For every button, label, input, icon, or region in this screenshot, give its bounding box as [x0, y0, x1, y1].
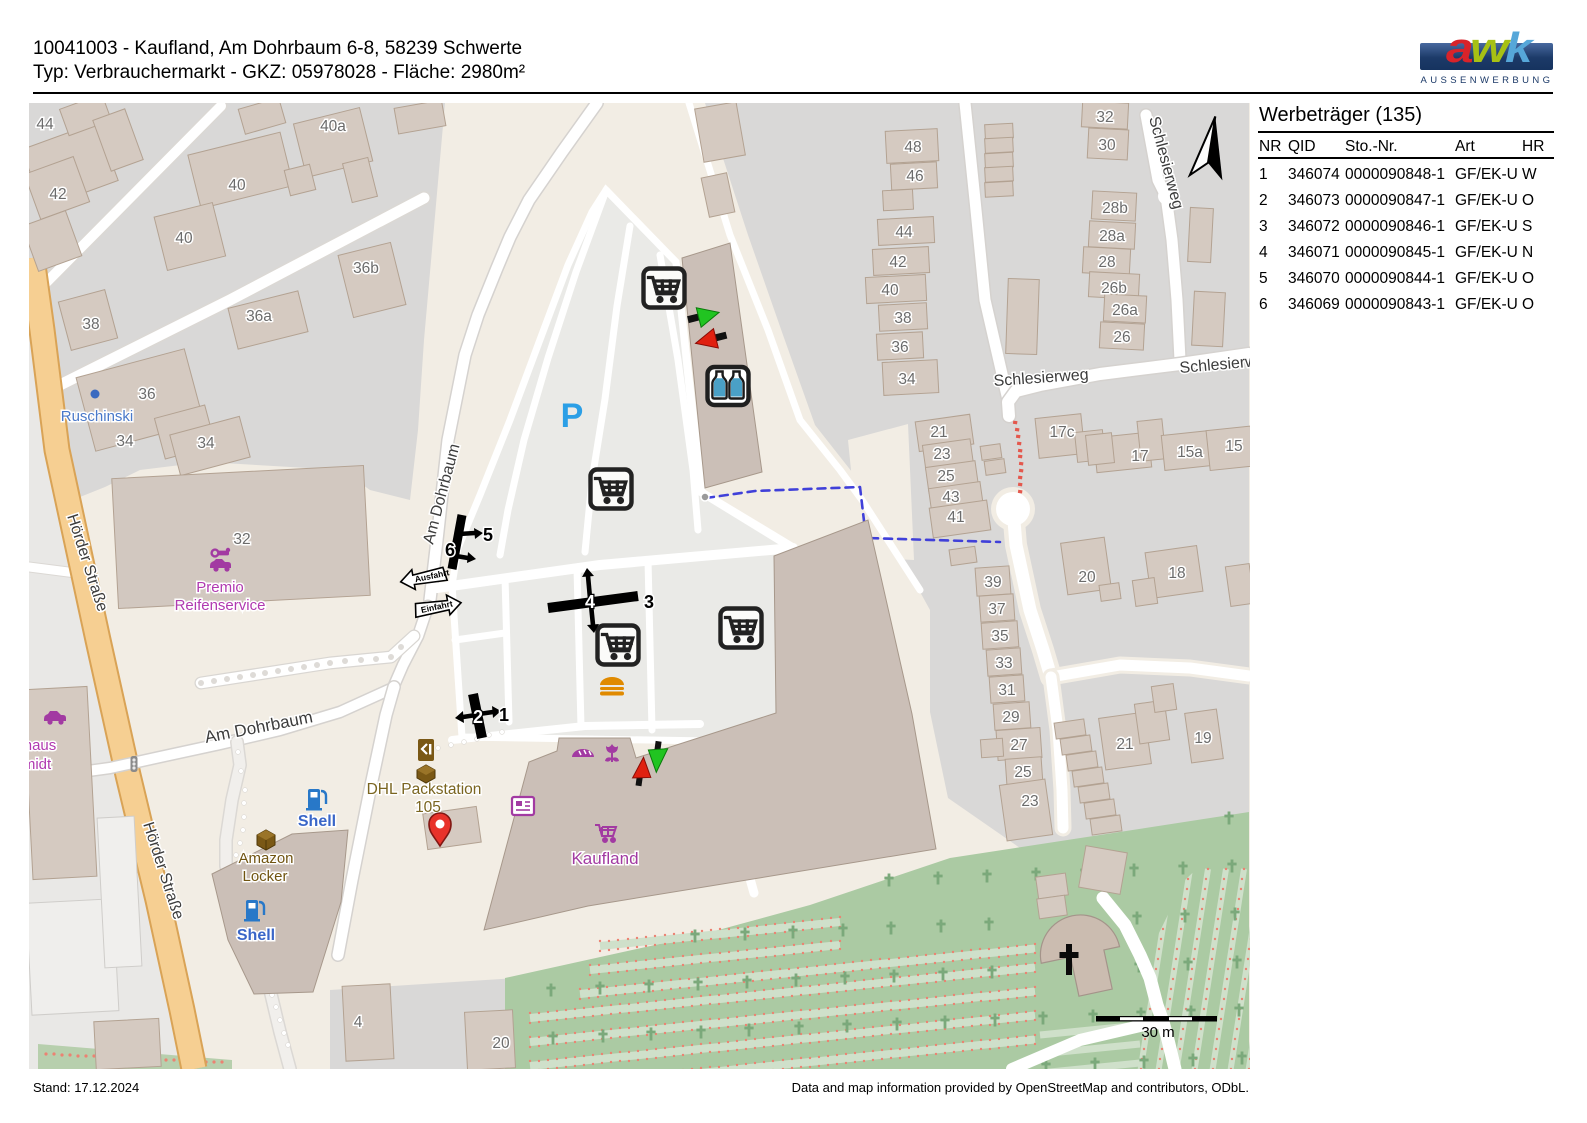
svg-text:26: 26: [1113, 329, 1130, 346]
svg-text:Shell: Shell: [237, 927, 275, 944]
svg-text:1: 1: [499, 705, 509, 725]
svg-text:30 m: 30 m: [1141, 1024, 1174, 1041]
svg-text:27: 27: [1010, 737, 1027, 754]
svg-text:15a: 15a: [1177, 444, 1203, 461]
svg-text:20: 20: [1078, 569, 1096, 586]
svg-text:31: 31: [998, 682, 1015, 699]
svg-text:36: 36: [891, 339, 908, 356]
svg-text:20: 20: [492, 1035, 510, 1052]
svg-text:36: 36: [138, 386, 155, 403]
svg-text:Kaufland: Kaufland: [571, 849, 638, 868]
svg-text:34: 34: [116, 433, 134, 450]
svg-text:38: 38: [82, 316, 99, 333]
svg-text:21: 21: [1116, 736, 1133, 753]
svg-text:28b: 28b: [1102, 200, 1128, 217]
svg-text:36a: 36a: [246, 308, 272, 325]
svg-text:28a: 28a: [1099, 228, 1125, 245]
svg-text:23: 23: [933, 446, 950, 463]
svg-text:19: 19: [1194, 730, 1211, 747]
svg-text:18: 18: [1168, 565, 1185, 582]
svg-text:21: 21: [930, 424, 947, 441]
svg-text:37: 37: [988, 601, 1005, 618]
svg-text:35: 35: [991, 628, 1008, 645]
svg-text:P: P: [561, 397, 584, 435]
svg-text:15: 15: [1225, 438, 1242, 455]
svg-text:40: 40: [228, 177, 246, 194]
svg-text:DHL Packstation: DHL Packstation: [367, 781, 482, 798]
svg-text:Premio: Premio: [196, 579, 244, 596]
svg-text:4: 4: [354, 1014, 363, 1031]
svg-text:26a: 26a: [1112, 302, 1138, 319]
svg-text:haus: haus: [29, 737, 56, 754]
svg-text:38: 38: [894, 310, 911, 327]
svg-text:Reifenservice: Reifenservice: [175, 597, 266, 614]
svg-text:43: 43: [942, 489, 959, 506]
svg-text:2: 2: [473, 707, 483, 727]
svg-text:Locker: Locker: [242, 868, 287, 885]
svg-text:46: 46: [906, 168, 923, 185]
svg-text:34: 34: [898, 371, 916, 388]
svg-text:Ruschinski: Ruschinski: [61, 408, 134, 425]
svg-text:30: 30: [1098, 137, 1116, 154]
svg-text:33: 33: [995, 655, 1012, 672]
svg-text:17c: 17c: [1050, 424, 1075, 441]
svg-text:5: 5: [483, 525, 493, 545]
svg-text:40: 40: [881, 282, 899, 299]
svg-text:40: 40: [175, 230, 193, 247]
svg-text:36b: 36b: [353, 260, 379, 277]
svg-text:3: 3: [644, 592, 654, 612]
svg-text:Shell: Shell: [298, 813, 336, 830]
svg-text:26b: 26b: [1101, 280, 1127, 297]
svg-text:32: 32: [1096, 109, 1113, 126]
svg-text:44: 44: [36, 116, 54, 133]
svg-text:42: 42: [889, 254, 906, 271]
svg-text:23: 23: [1021, 793, 1038, 810]
svg-text:midt: midt: [29, 756, 52, 773]
svg-text:4: 4: [585, 592, 595, 612]
svg-text:25: 25: [937, 468, 954, 485]
svg-text:40a: 40a: [320, 118, 346, 135]
svg-text:44: 44: [895, 224, 913, 241]
svg-text:34: 34: [197, 435, 215, 452]
svg-text:Amazon: Amazon: [238, 850, 293, 867]
svg-text:28: 28: [1098, 254, 1115, 271]
svg-text:48: 48: [904, 139, 921, 156]
svg-text:6: 6: [445, 540, 455, 560]
svg-text:39: 39: [984, 574, 1001, 591]
svg-text:25: 25: [1014, 764, 1031, 781]
svg-text:41: 41: [947, 509, 964, 526]
svg-text:29: 29: [1002, 709, 1019, 726]
svg-text:17: 17: [1131, 448, 1148, 465]
svg-text:42: 42: [49, 186, 66, 203]
svg-text:32: 32: [233, 531, 250, 548]
